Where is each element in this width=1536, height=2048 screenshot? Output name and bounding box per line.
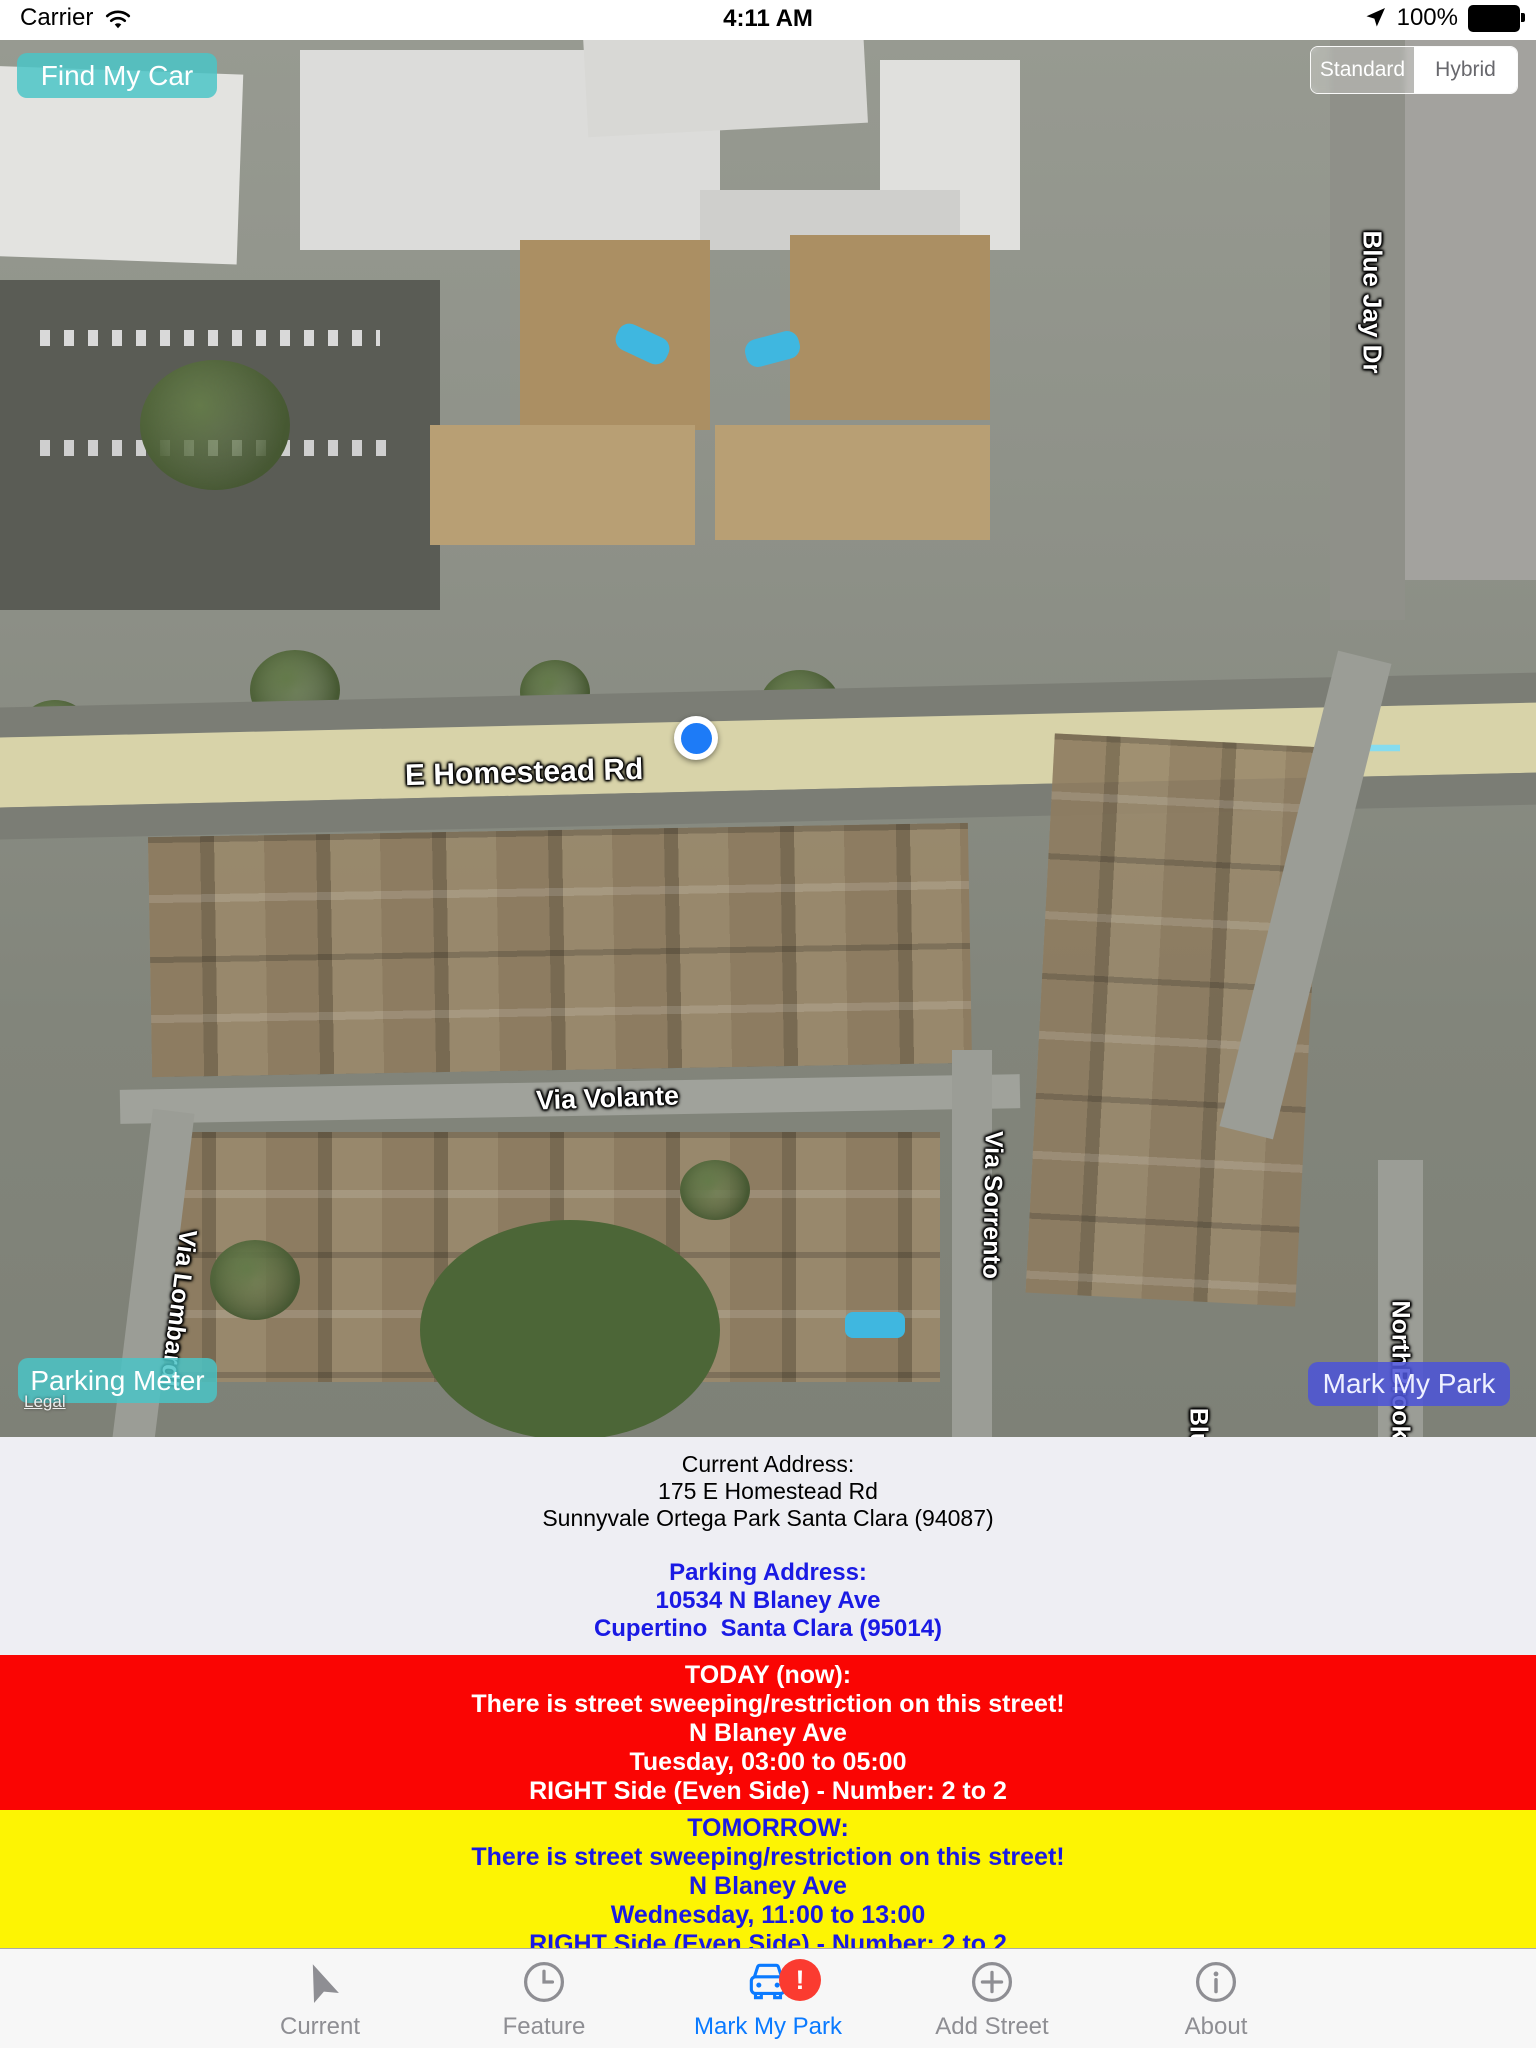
- tomorrow-alert-street: N Blaney Ave: [0, 1872, 1536, 1901]
- battery-percent: 100%: [1397, 4, 1458, 32]
- find-my-car-button[interactable]: Find My Car: [17, 53, 217, 98]
- map-lawn: [420, 1220, 720, 1437]
- tab-current[interactable]: Current: [208, 1949, 432, 2048]
- today-alert-street: N Blaney Ave: [0, 1719, 1536, 1748]
- parking-address-title: Parking Address:: [0, 1559, 1536, 1587]
- current-address-city: Sunnyvale Ortega Park Santa Clara (94087…: [0, 1505, 1536, 1532]
- car-icon: !: [743, 1957, 793, 2007]
- tab-mark-my-park-label: Mark My Park: [694, 2013, 842, 2041]
- today-alert-side: RIGHT Side (Even Side) - Number: 2 to 2: [0, 1777, 1536, 1806]
- status-bar: Carrier 4:11 AM 100%: [0, 0, 1536, 40]
- location-arrow-icon: [1363, 6, 1387, 30]
- tab-about[interactable]: About: [1104, 1949, 1328, 2048]
- map-trees: [210, 1240, 300, 1320]
- tomorrow-alert-time: Wednesday, 11:00 to 13:00: [0, 1901, 1536, 1930]
- parking-address-city: Cupertino Santa Clara (95014): [0, 1615, 1536, 1643]
- street-label-blue-jay-dr: Blue Jay Dr: [1357, 230, 1388, 373]
- street-label-blu-partial: Blu: [1184, 1408, 1213, 1437]
- map-trees: [140, 360, 290, 490]
- info-circle-icon: [1193, 1957, 1239, 2007]
- tab-feature[interactable]: Feature: [432, 1949, 656, 2048]
- street-label-via-sorrento: Via Sorrento: [976, 1131, 1008, 1280]
- map-pool: [845, 1312, 905, 1338]
- map-houses: [148, 823, 972, 1077]
- map-type-segmented-control: Standard Hybrid: [1310, 46, 1518, 94]
- today-alert-title: TODAY (now):: [0, 1661, 1536, 1690]
- parking-address-street: 10534 N Blaney Ave: [0, 1587, 1536, 1615]
- user-location-dot: [674, 716, 718, 760]
- clock-icon: [521, 1957, 567, 2007]
- tab-about-label: About: [1185, 2013, 1248, 2041]
- address-panel: Current Address: 175 E Homestead Rd Sunn…: [0, 1437, 1536, 1655]
- map-type-standard-segment[interactable]: Standard: [1311, 47, 1414, 93]
- map[interactable]: E Homestead Rd Via Volante Via Lombardi …: [0, 40, 1536, 1437]
- map-trees: [680, 1160, 750, 1220]
- tab-current-label: Current: [280, 2013, 360, 2041]
- map-building: [790, 235, 990, 420]
- map-parked-cars: [40, 330, 380, 346]
- tab-feature-label: Feature: [503, 2013, 586, 2041]
- current-address-title: Current Address:: [0, 1451, 1536, 1478]
- tab-add-street[interactable]: Add Street: [880, 1949, 1104, 2048]
- tomorrow-alert-banner: TOMORROW: There is street sweeping/restr…: [0, 1810, 1536, 1948]
- battery-icon: [1468, 5, 1520, 32]
- find-my-car-label: Find My Car: [41, 60, 193, 92]
- tab-mark-my-park[interactable]: ! Mark My Park: [656, 1949, 880, 2048]
- street-label-via-volante: Via Volante: [536, 1081, 680, 1117]
- current-address-street: 175 E Homestead Rd: [0, 1478, 1536, 1505]
- legal-link[interactable]: Legal: [24, 1392, 66, 1412]
- navigation-arrow-icon: [297, 1957, 343, 2007]
- street-label-e-homestead-rd: E Homestead Rd: [405, 753, 644, 793]
- clock-time: 4:11 AM: [0, 5, 1536, 33]
- notification-badge: !: [779, 1959, 821, 2001]
- map-type-hybrid-segment[interactable]: Hybrid: [1414, 47, 1517, 93]
- mark-my-park-button[interactable]: Mark My Park: [1308, 1362, 1510, 1406]
- standard-label: Standard: [1320, 58, 1405, 82]
- map-building: [715, 425, 990, 540]
- hybrid-label: Hybrid: [1435, 58, 1496, 82]
- plus-circle-icon: [969, 1957, 1015, 2007]
- today-alert-message: There is street sweeping/restriction on …: [0, 1690, 1536, 1719]
- map-building: [582, 40, 868, 137]
- today-alert-time: Tuesday, 03:00 to 05:00: [0, 1748, 1536, 1777]
- app-root: Carrier 4:11 AM 100%: [0, 0, 1536, 2048]
- tab-add-street-label: Add Street: [935, 2013, 1048, 2041]
- tomorrow-alert-title: TOMORROW:: [0, 1814, 1536, 1843]
- map-building: [430, 425, 695, 545]
- mark-my-park-button-label: Mark My Park: [1323, 1368, 1496, 1400]
- tab-bar: Current Feature: [0, 1948, 1536, 2048]
- tomorrow-alert-message: There is street sweeping/restriction on …: [0, 1843, 1536, 1872]
- map-concrete: [1405, 40, 1536, 580]
- today-alert-banner: TODAY (now): There is street sweeping/re…: [0, 1655, 1536, 1810]
